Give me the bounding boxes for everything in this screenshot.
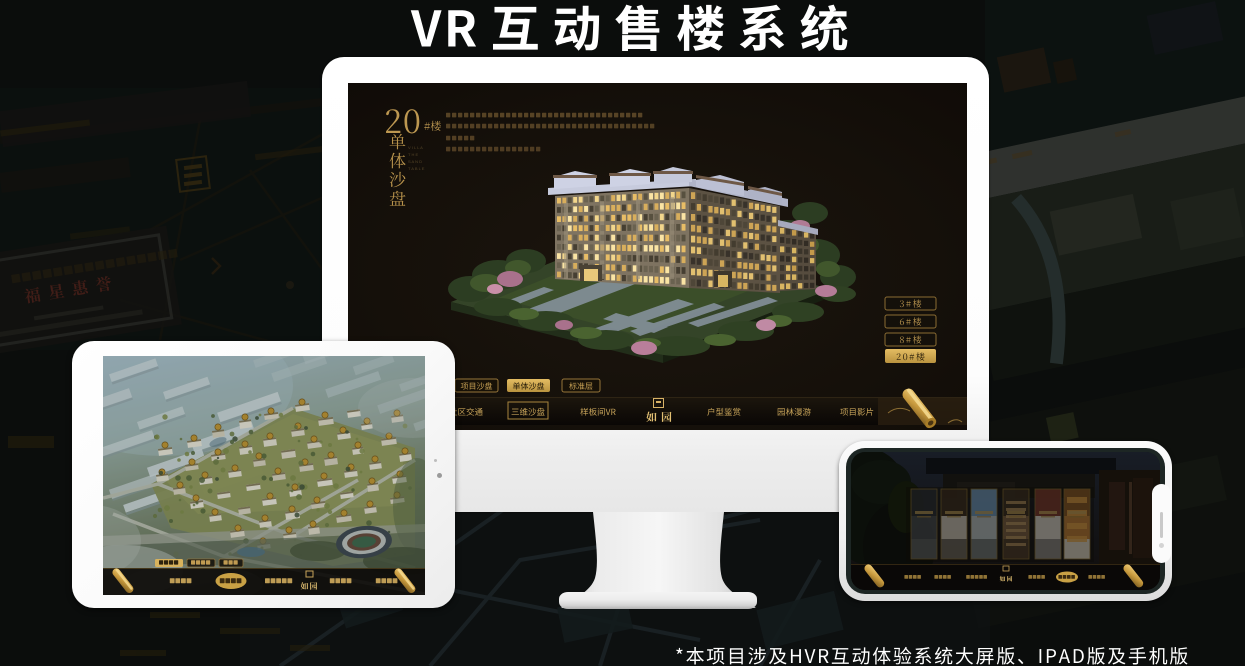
svg-text:V I L L A: V I L L A [408,145,423,150]
svg-text:S A N D: S A N D [408,159,422,164]
svg-text:T A B L E: T A B L E [408,166,425,171]
svg-text:T H E: T H E [408,152,418,157]
